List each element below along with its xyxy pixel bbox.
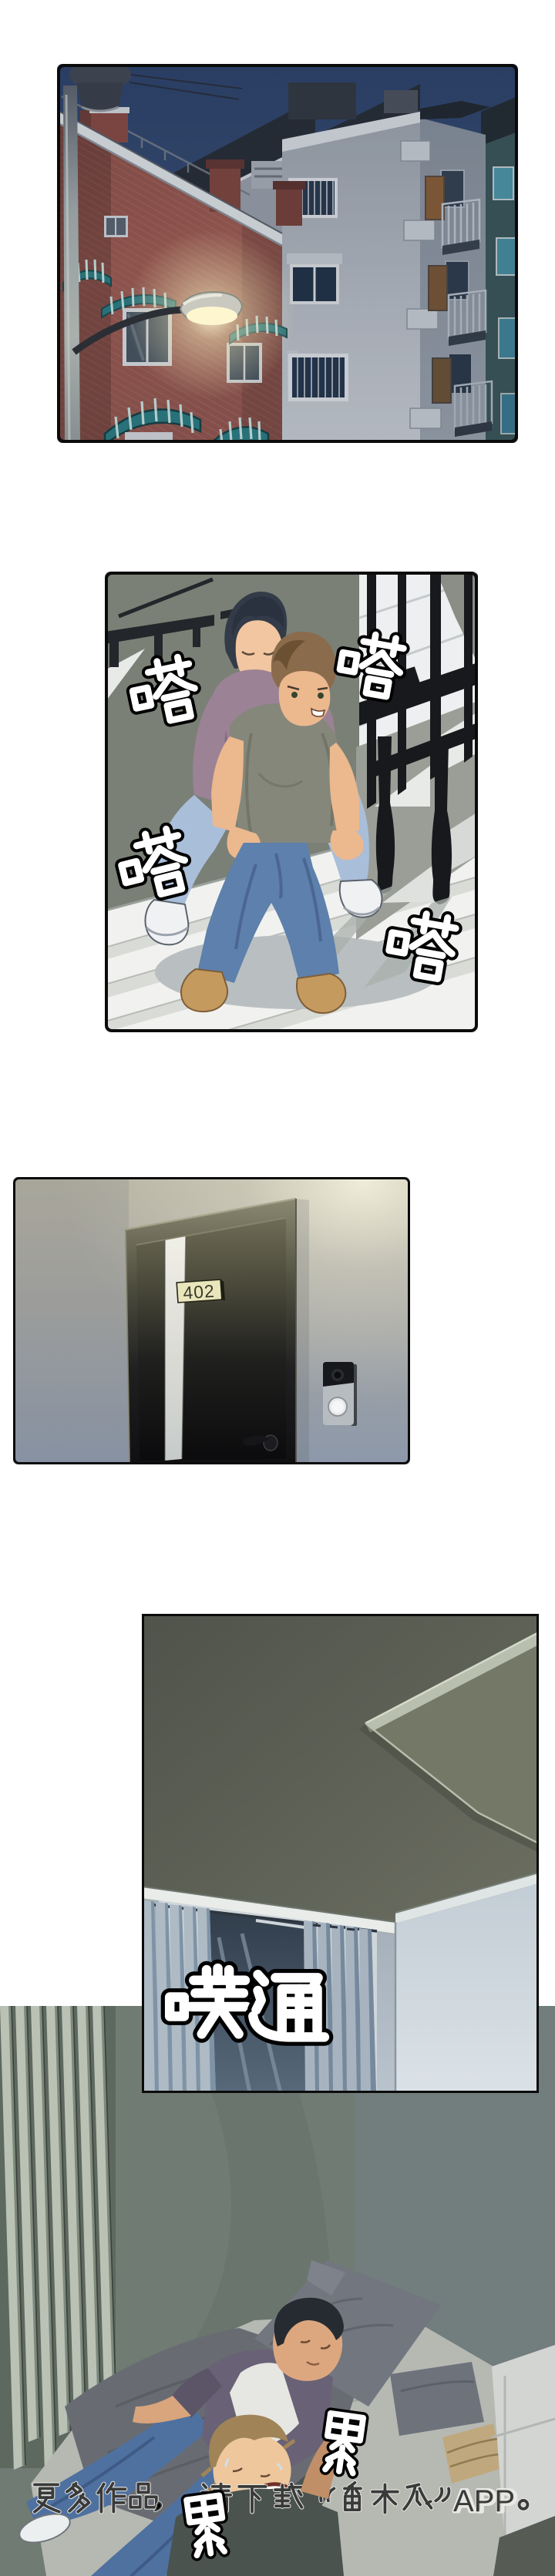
svg-text:402: 402 — [183, 1281, 216, 1303]
svg-text:APP: APP — [453, 2484, 515, 2518]
